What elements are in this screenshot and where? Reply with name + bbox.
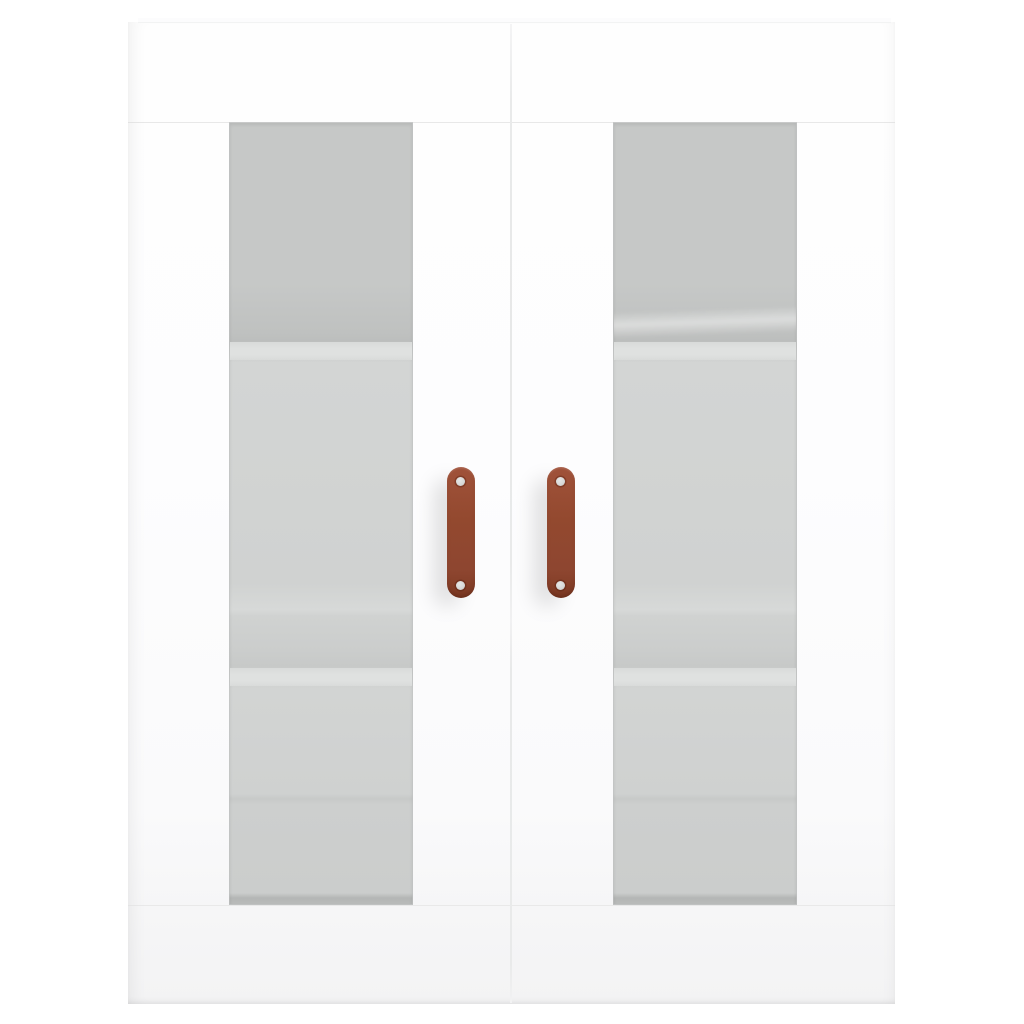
left-door xyxy=(128,22,512,1004)
handle-screw-bottom xyxy=(556,581,565,590)
handle-screw-top xyxy=(456,477,465,486)
handle-screw-top xyxy=(556,477,565,486)
left-door-handle xyxy=(447,467,475,598)
right-shelf-lower-edge xyxy=(614,668,796,686)
glass-reflection xyxy=(613,305,797,338)
right-door-handle xyxy=(547,467,575,598)
right-shelf-upper-edge xyxy=(614,342,796,360)
handle-screw-bottom xyxy=(456,581,465,590)
wall-cabinet xyxy=(128,22,895,1004)
right-door xyxy=(512,22,895,1004)
left-shelf-lower-edge xyxy=(230,668,412,686)
product-photo xyxy=(0,0,1024,1024)
right-door-glass-panel xyxy=(613,122,797,905)
left-shelf-upper-edge xyxy=(230,342,412,360)
door-seam xyxy=(510,24,512,1003)
left-door-glass-panel xyxy=(229,122,413,905)
